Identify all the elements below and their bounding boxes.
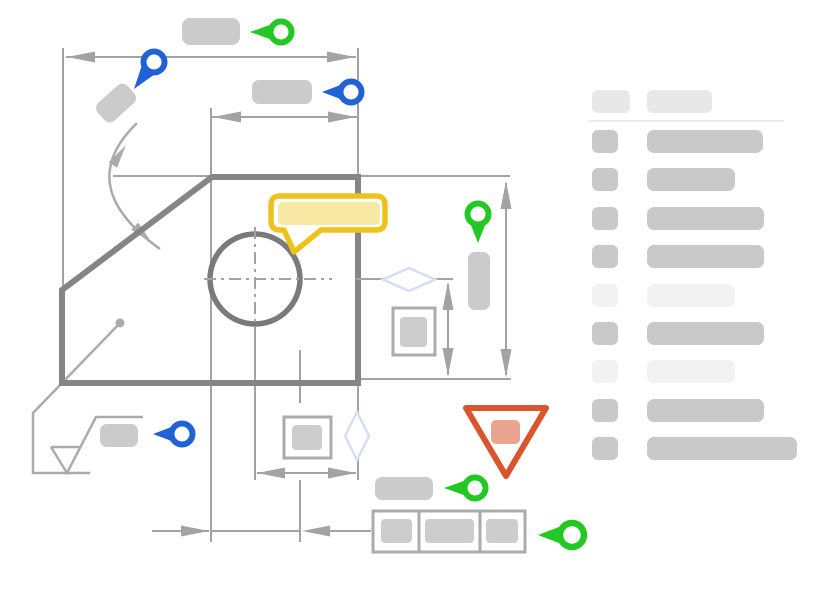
comment-text-placeholder: [278, 202, 380, 225]
sidebar-row-label-placeholder: [647, 245, 764, 268]
warning-chip: [491, 420, 520, 444]
feature-control-frame: [373, 511, 525, 552]
sidebar-row[interactable]: [588, 399, 803, 422]
sidebar-row[interactable]: [588, 168, 803, 191]
sidebar-row-icon-placeholder: [592, 322, 618, 345]
label-surface: [100, 424, 138, 447]
app-canvas: [0, 0, 827, 591]
sidebar-row[interactable]: [588, 322, 803, 345]
label-bottom: [375, 477, 433, 500]
sidebar-row-icon-placeholder: [592, 360, 618, 383]
pin-green-top[interactable]: [250, 21, 292, 43]
sidebar-row-icon-placeholder: [592, 207, 618, 230]
tolerance-box-right: [393, 308, 435, 355]
sidebar-row-label-placeholder: [647, 284, 735, 307]
pin-green-bottom[interactable]: [444, 477, 486, 499]
sidebar-divider: [588, 120, 784, 122]
annotation-sidebar: [588, 88, 803, 478]
sidebar-header-chip: [647, 90, 712, 113]
sidebar-row-icon-placeholder: [592, 130, 618, 153]
warning-marker[interactable]: [466, 408, 546, 476]
sidebar-row-icon-placeholder: [592, 245, 618, 268]
sidebar-row[interactable]: [588, 207, 803, 230]
pin-blue-width[interactable]: [322, 81, 362, 103]
label-angle: [93, 81, 139, 126]
label-height: [468, 252, 490, 310]
datum-diamond-right: [383, 268, 435, 291]
pin-green-fcf[interactable]: [538, 522, 584, 548]
sidebar-row-label-placeholder: [647, 130, 763, 153]
sidebar-row-label-placeholder: [647, 360, 735, 383]
sidebar-row-label-placeholder: [647, 437, 797, 460]
comment-bubble[interactable]: [271, 196, 385, 252]
pin-blue-surface[interactable]: [153, 423, 193, 445]
sidebar-row-label-placeholder: [647, 168, 735, 191]
sidebar-row[interactable]: [588, 284, 803, 307]
sidebar-row[interactable]: [588, 130, 803, 153]
sidebar-row-icon-placeholder: [592, 284, 618, 307]
sidebar-list: [588, 130, 803, 460]
sidebar-row-icon-placeholder: [592, 399, 618, 422]
sidebar-row-icon-placeholder: [592, 437, 618, 460]
sidebar-row[interactable]: [588, 245, 803, 268]
angle-dimension-arc: [109, 123, 160, 249]
sidebar-row[interactable]: [588, 437, 803, 460]
tolerance-box-bottom: [284, 417, 331, 458]
label-top: [182, 18, 240, 45]
sidebar-header-chip: [592, 90, 630, 113]
datum-diamond-bottom: [345, 412, 369, 460]
sidebar-row[interactable]: [588, 360, 803, 383]
sidebar-row-label-placeholder: [647, 399, 764, 422]
sidebar-row-label-placeholder: [647, 207, 764, 230]
sidebar-row-label-placeholder: [647, 322, 764, 345]
sidebar-header: [588, 88, 803, 113]
sidebar-row-icon-placeholder: [592, 168, 618, 191]
pin-green-height[interactable]: [467, 204, 489, 244]
label-width: [252, 80, 312, 104]
